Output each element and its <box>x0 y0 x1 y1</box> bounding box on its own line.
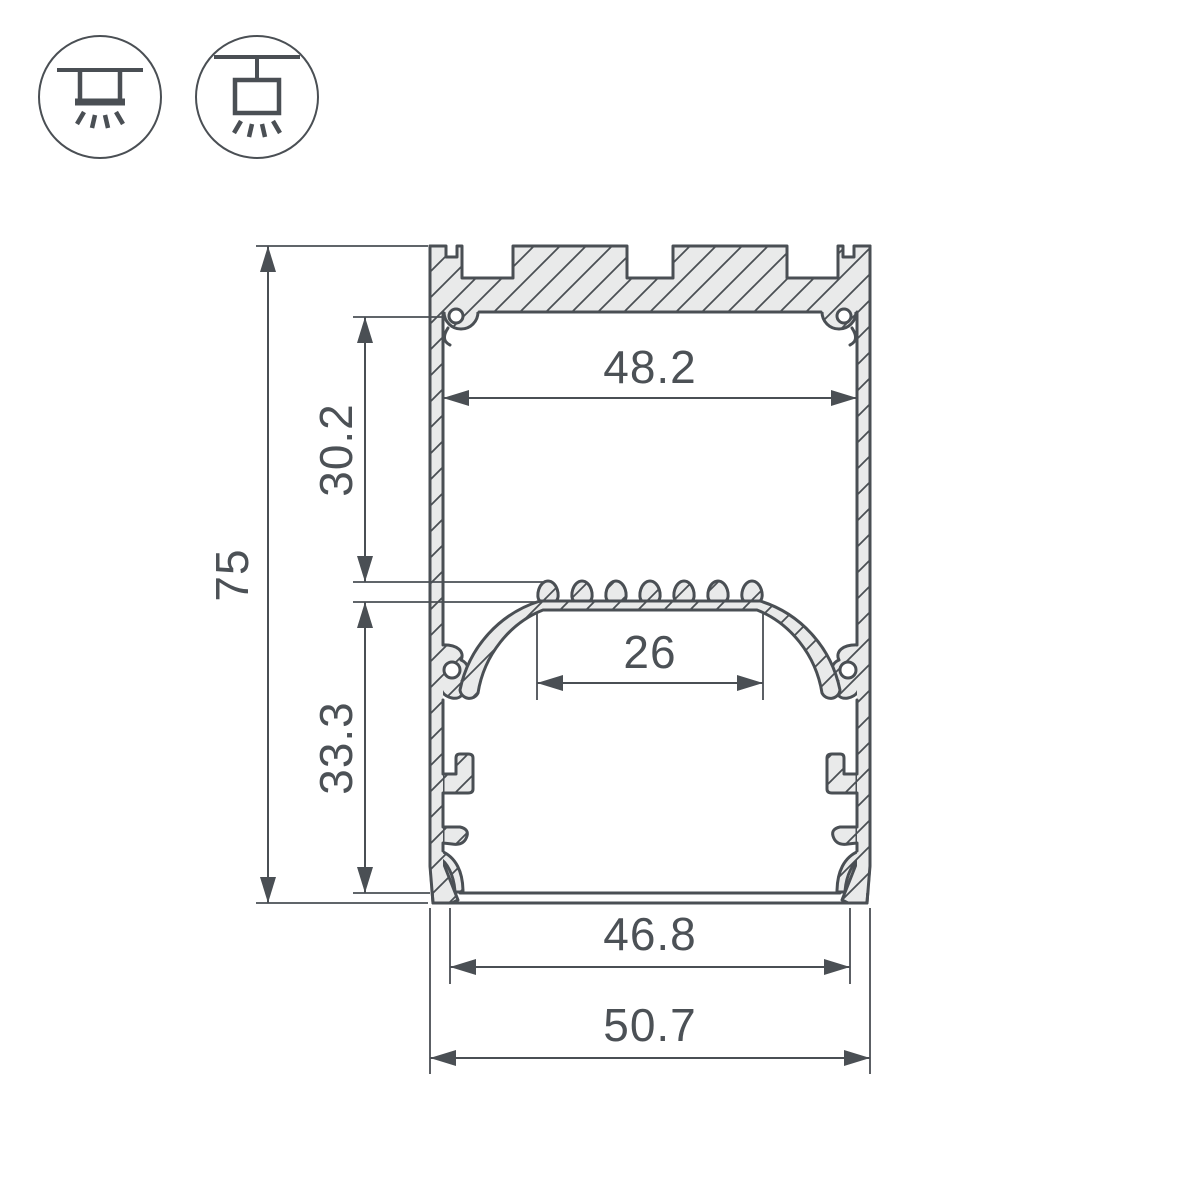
receiver-hole-left <box>444 662 460 678</box>
dimension-label: 75 <box>206 548 258 601</box>
light-rays-icon <box>234 121 280 137</box>
dimension-led-platform-width: 26 <box>537 614 763 700</box>
platform-ribs <box>538 581 762 601</box>
light-rays-icon <box>77 112 123 128</box>
fixture-box <box>80 70 120 100</box>
ceiling-surface-mount-icon <box>39 36 161 158</box>
clip-nub-left <box>443 827 467 844</box>
screw-boss-hole-right <box>837 309 851 323</box>
suspended-pendant-mount-icon <box>196 36 318 158</box>
mounting-tab-left <box>443 754 473 793</box>
dimension-lower-cavity-height: 33.3 <box>310 602 540 893</box>
dimension-upper-cavity-width: 48.2 <box>443 341 857 406</box>
clip-nub-right <box>833 827 857 844</box>
icon-circle <box>39 36 161 158</box>
top-cap-outline <box>430 246 870 278</box>
icon-circle <box>196 36 318 158</box>
boss-finger-left <box>444 328 450 345</box>
mounting-tab-right <box>827 754 857 793</box>
technical-drawing: 75 30.2 33.3 48.2 26 46.8 <box>0 0 1200 1200</box>
screw-boss-hole-left <box>449 309 463 323</box>
side-wall-right <box>857 310 870 893</box>
receiver-hole-right <box>840 662 856 678</box>
dimension-label: 46.8 <box>603 908 697 960</box>
dimension-label: 26 <box>623 626 676 678</box>
dimension-bottom-opening-width: 46.8 <box>450 908 850 984</box>
diffuser <box>452 893 848 903</box>
fixture-box <box>235 80 279 113</box>
dimension-label: 50.7 <box>603 999 697 1051</box>
dimension-overall-height: 75 <box>206 246 428 903</box>
dimension-label: 48.2 <box>603 341 697 393</box>
dimension-label: 30.2 <box>310 403 362 497</box>
dimension-upper-cavity-height: 30.2 <box>310 317 545 582</box>
dimension-label: 33.3 <box>310 701 362 795</box>
boss-finger-right <box>850 328 856 345</box>
